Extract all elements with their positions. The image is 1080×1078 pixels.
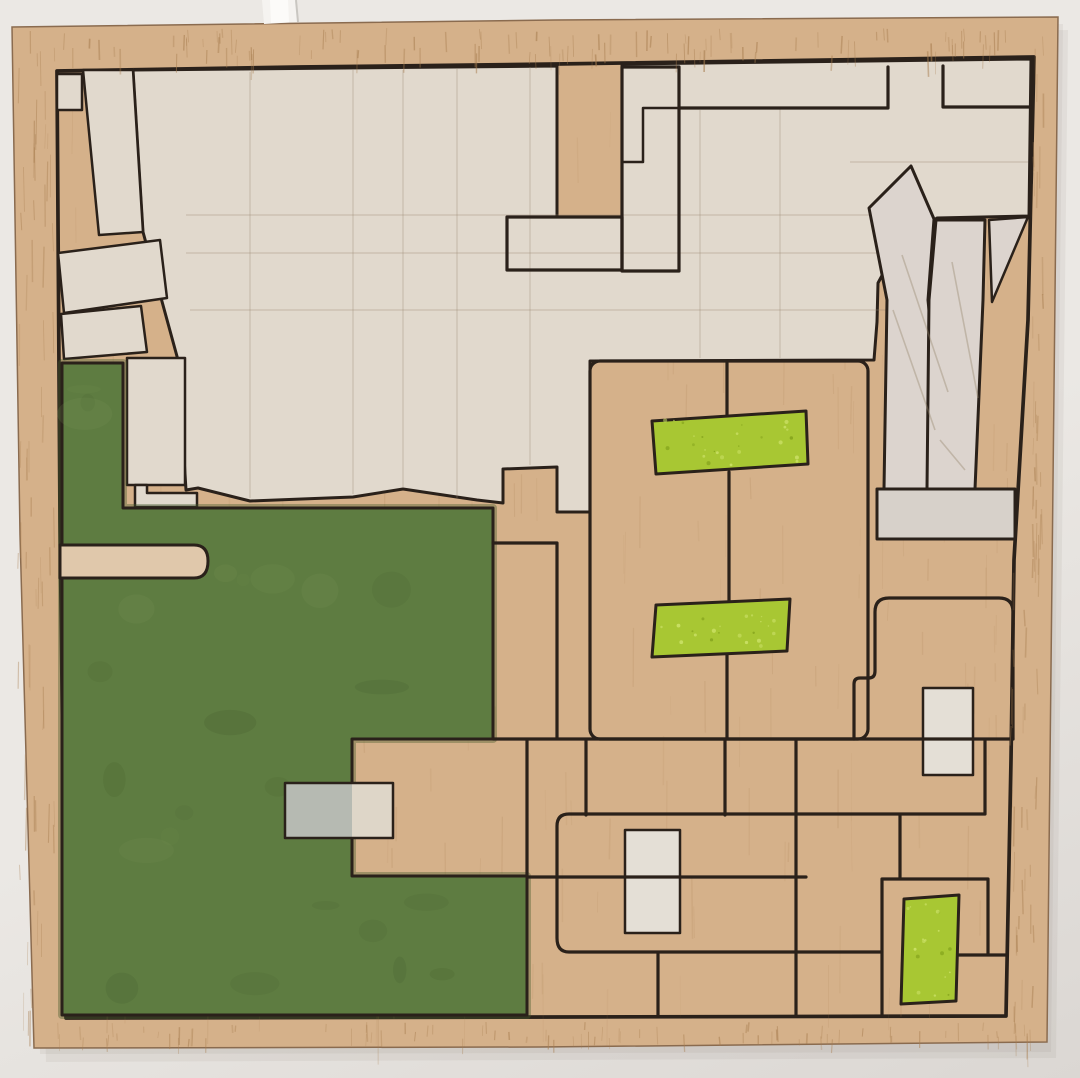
gray-block-cream xyxy=(352,783,393,838)
lime-rect-2 xyxy=(652,599,790,657)
white-block-1 xyxy=(923,688,973,775)
cable-highlight xyxy=(270,0,289,23)
white-block-2 xyxy=(625,830,680,933)
brick-tilted-2 xyxy=(61,306,147,359)
brick-small-rect xyxy=(57,74,82,110)
wood-notch xyxy=(60,545,208,578)
gray-block-group xyxy=(285,783,393,838)
pale-bar xyxy=(877,489,1015,539)
photo-scene xyxy=(0,0,1080,1078)
hanging-cable xyxy=(262,0,298,24)
artwork-photo xyxy=(0,0,1080,1078)
cream-finger xyxy=(127,358,185,485)
